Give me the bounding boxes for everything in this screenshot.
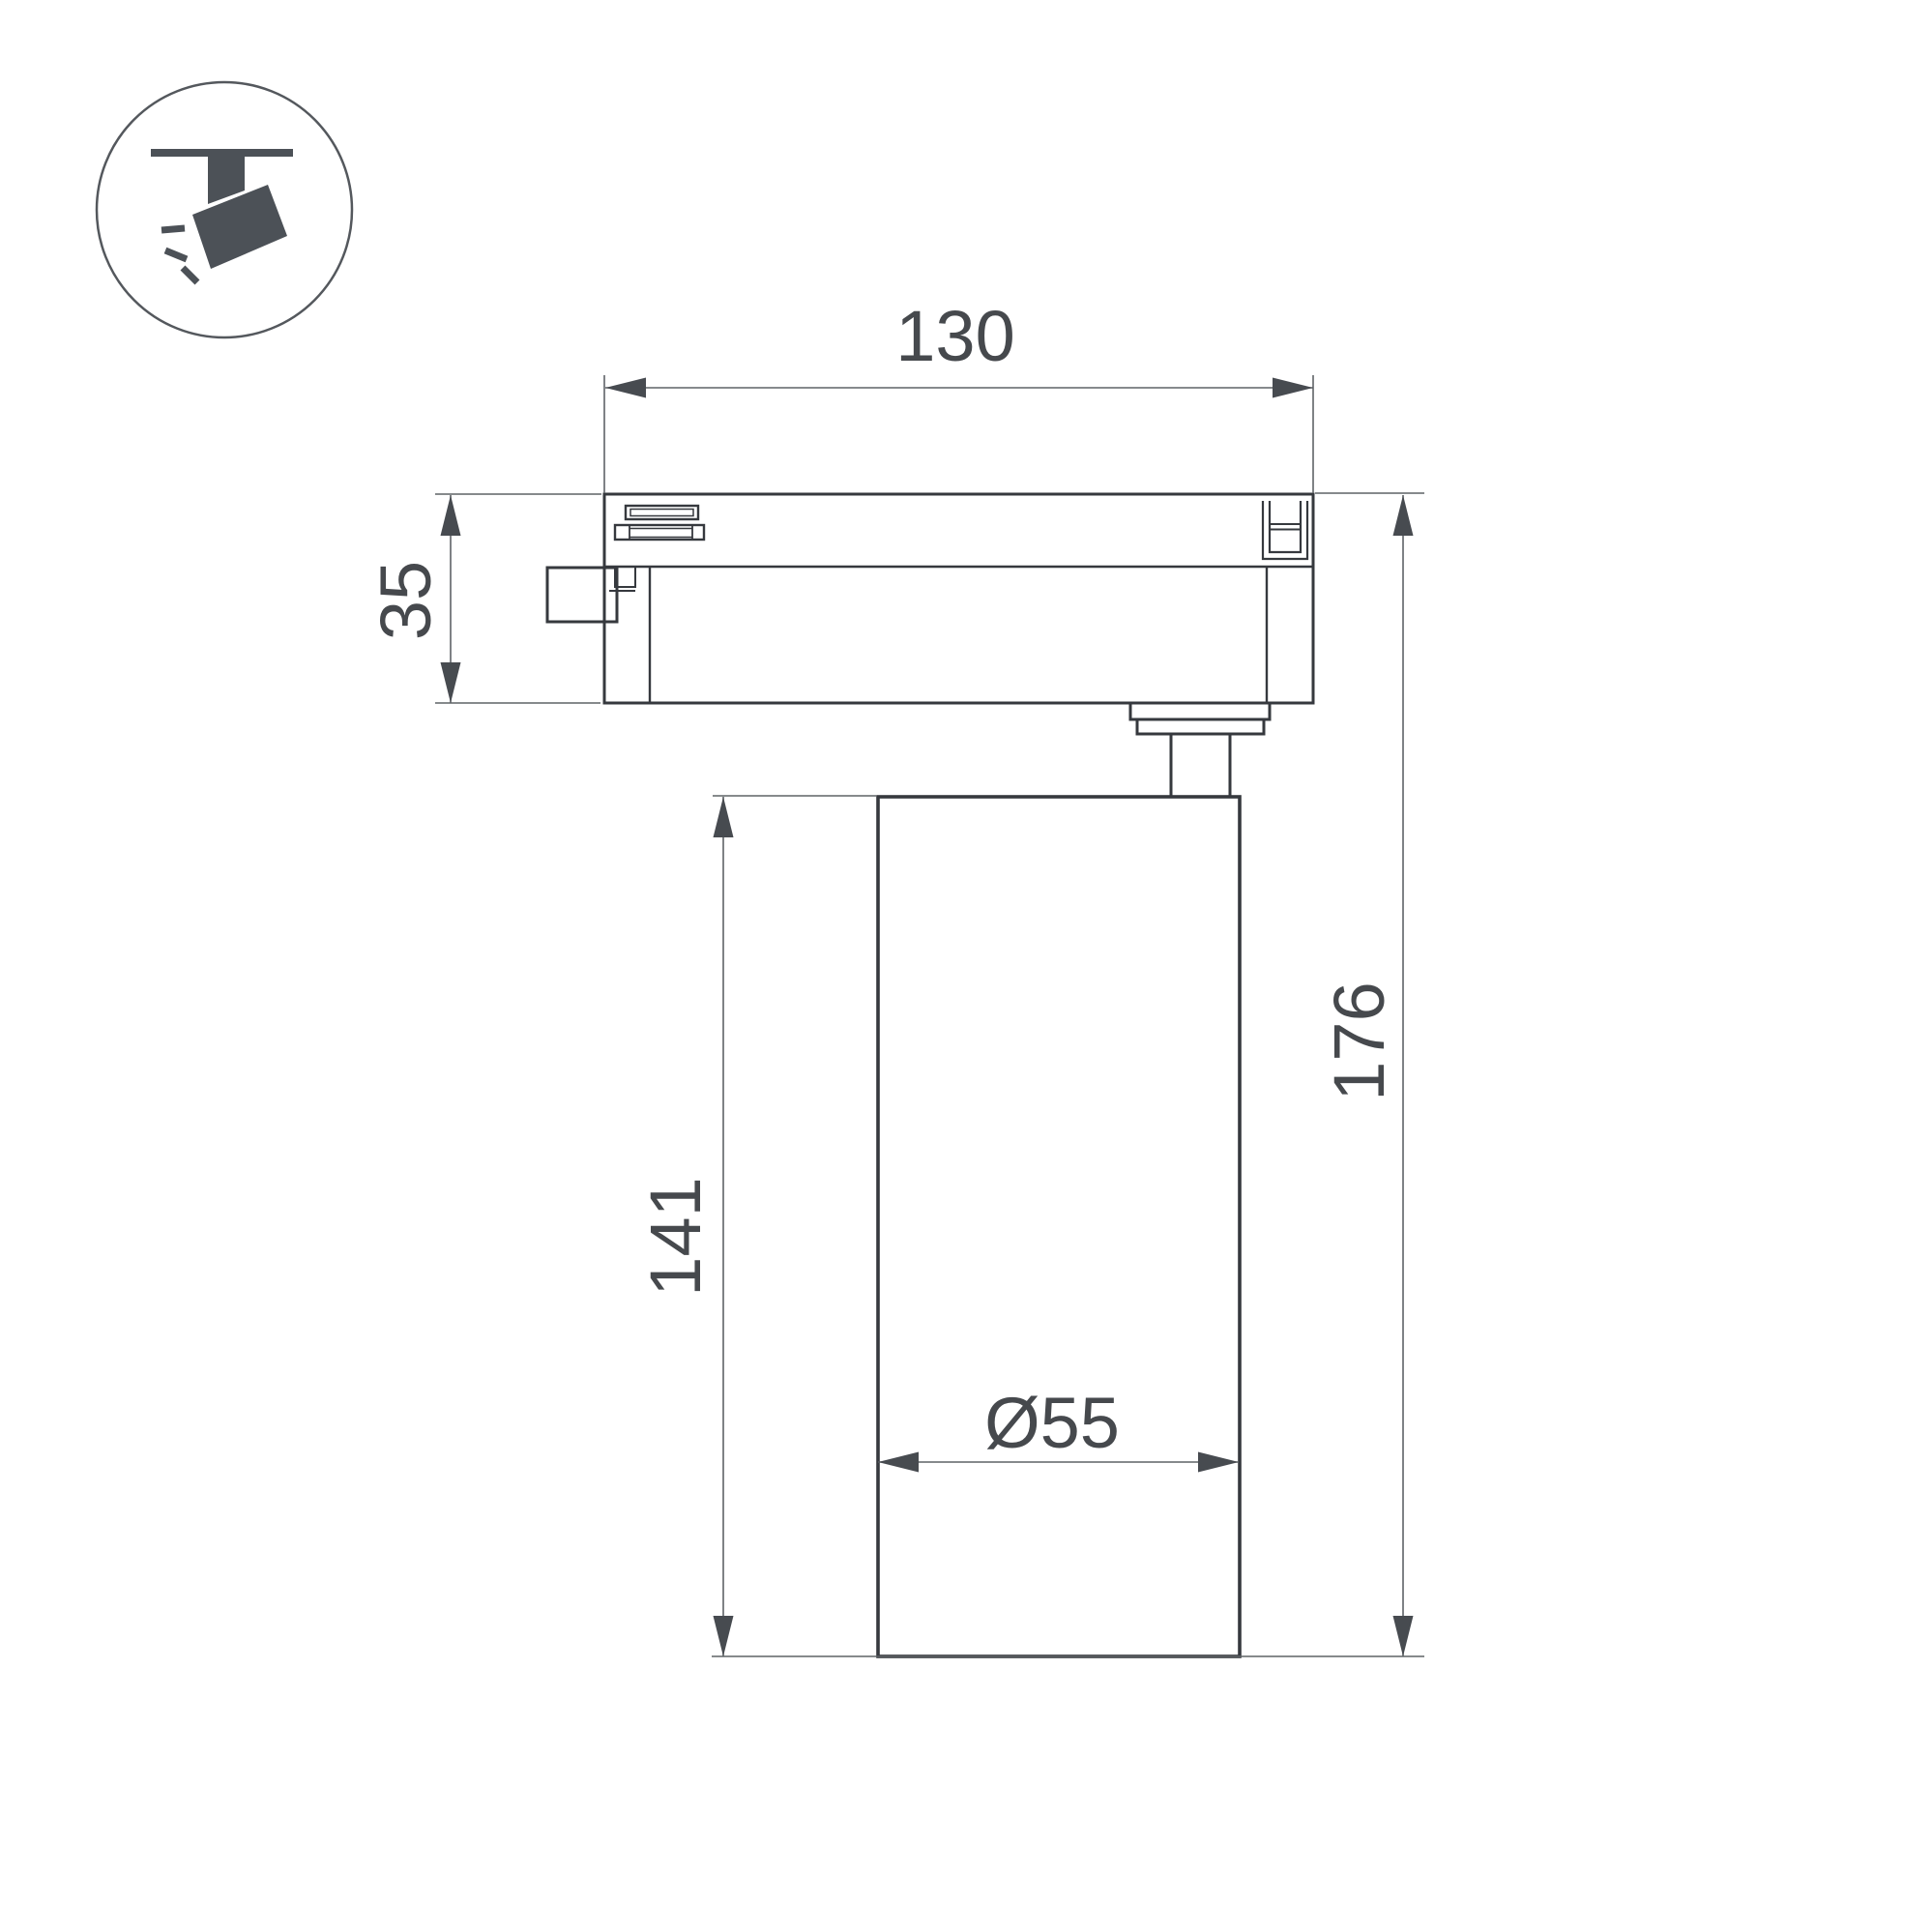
dim-label-body-height: 141 [635, 1177, 716, 1296]
swivel-neck [1130, 703, 1270, 797]
arrowhead-down [441, 662, 461, 703]
track-adapter [547, 494, 1313, 703]
dimension-adapter-height: 35 [366, 494, 601, 703]
dim-label-total-height: 176 [1319, 981, 1399, 1100]
contact-clip-upper [626, 506, 698, 519]
lock-clip-inner [1270, 501, 1301, 552]
drawing-page: 130 35 141 176 Ø55 [0, 0, 1932, 1932]
adapter-outline [604, 494, 1313, 703]
lamp-body [878, 797, 1240, 1656]
track-light-icon [97, 82, 352, 337]
arrowhead-up [441, 495, 461, 536]
light-ray-icon [161, 228, 185, 230]
dimension-adapter-width: 130 [604, 296, 1313, 493]
neck-step-1 [1130, 703, 1270, 719]
dim-label-adapter-width: 130 [895, 296, 1014, 376]
arrowhead-down [1393, 1616, 1414, 1656]
technical-drawing-svg: 130 35 141 176 Ø55 [0, 0, 1932, 1932]
arrowhead-left [605, 378, 646, 398]
icon-track-bar [151, 149, 293, 157]
dimension-body-height: 141 [635, 796, 876, 1656]
neck-step-2 [1137, 719, 1264, 734]
arrowhead-right [1198, 1452, 1239, 1473]
arrowhead-left [878, 1452, 919, 1473]
dimension-total-height: 176 [1315, 493, 1424, 1656]
arrowhead-right [1273, 378, 1313, 398]
contact-clip-upper-inner [630, 510, 693, 516]
arrowhead-up [714, 797, 734, 837]
dim-label-body-diameter: Ø55 [984, 1383, 1120, 1463]
arrowhead-up [1393, 495, 1414, 536]
fixture-drawing [547, 494, 1313, 1656]
adapter-switch-box [547, 568, 617, 622]
neck-stem [1171, 734, 1230, 797]
arrowhead-down [714, 1616, 734, 1656]
dim-label-adapter-height: 35 [366, 561, 446, 640]
dimension-body-diameter: Ø55 [878, 1383, 1239, 1473]
